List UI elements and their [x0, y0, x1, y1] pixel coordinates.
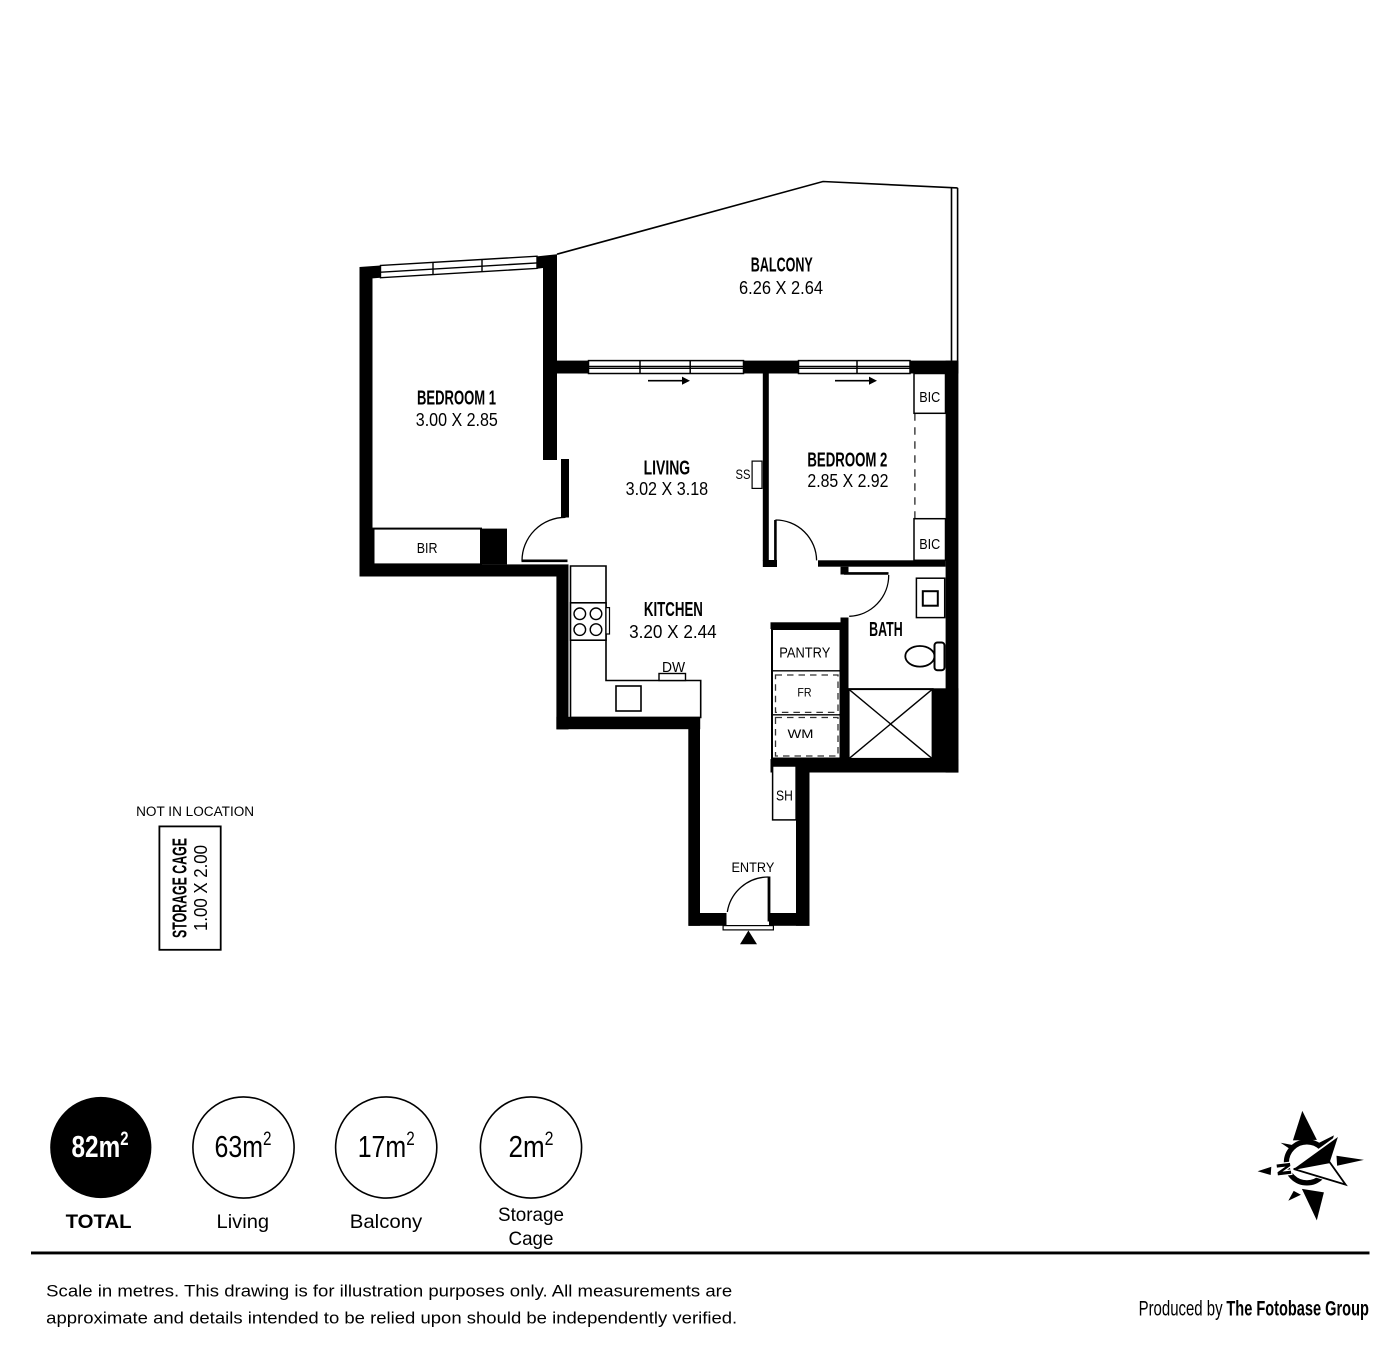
- svg-text:17m2: 17m2: [358, 1129, 415, 1164]
- svg-text:ENTRY: ENTRY: [731, 859, 774, 875]
- svg-text:BEDROOM 1: BEDROOM 1: [417, 388, 496, 410]
- svg-text:The Fotobase Group: The Fotobase Group: [1226, 1298, 1369, 1321]
- svg-text:SS: SS: [736, 466, 751, 482]
- svg-text:Living: Living: [217, 1211, 270, 1233]
- svg-text:approximate and details intend: approximate and details intended to be r…: [46, 1309, 737, 1328]
- svg-text:BALCONY: BALCONY: [751, 254, 813, 276]
- svg-text:BATH: BATH: [869, 619, 903, 641]
- svg-text:DW: DW: [662, 659, 686, 676]
- svg-text:FR: FR: [797, 686, 811, 700]
- svg-text:PANTRY: PANTRY: [779, 645, 830, 661]
- svg-text:1.00 X 2.00: 1.00 X 2.00: [191, 845, 211, 931]
- svg-text:3.02 X 3.18: 3.02 X 3.18: [626, 479, 709, 499]
- svg-text:BEDROOM 2: BEDROOM 2: [807, 450, 887, 472]
- svg-text:NOT IN LOCATION: NOT IN LOCATION: [136, 804, 254, 819]
- svg-text:BIC: BIC: [919, 536, 940, 553]
- svg-text:STORAGE CAGE: STORAGE CAGE: [170, 838, 192, 938]
- svg-text:KITCHEN: KITCHEN: [644, 599, 703, 621]
- svg-text:BIR: BIR: [417, 540, 438, 557]
- svg-text:WM: WM: [788, 727, 814, 741]
- svg-text:LIVING: LIVING: [644, 458, 691, 480]
- svg-text:Storage: Storage: [498, 1204, 564, 1226]
- svg-text:2.85 X 2.92: 2.85 X 2.92: [807, 471, 888, 491]
- svg-text:BIC: BIC: [919, 389, 940, 406]
- svg-text:Produced by: Produced by: [1139, 1298, 1223, 1321]
- svg-text:3.20 X 2.44: 3.20 X 2.44: [629, 622, 717, 642]
- svg-text:Balcony: Balcony: [350, 1211, 423, 1233]
- svg-text:Scale in metres. This drawing: Scale in metres. This drawing is for ill…: [46, 1282, 732, 1301]
- svg-text:6.26 X 2.64: 6.26 X 2.64: [739, 278, 823, 298]
- svg-text:Cage: Cage: [509, 1228, 554, 1250]
- svg-text:SH: SH: [776, 788, 793, 805]
- svg-text:TOTAL: TOTAL: [66, 1211, 132, 1233]
- svg-text:3.00 X 2.85: 3.00 X 2.85: [416, 410, 498, 430]
- svg-text:63m2: 63m2: [215, 1129, 272, 1164]
- svg-text:82m2: 82m2: [72, 1129, 129, 1164]
